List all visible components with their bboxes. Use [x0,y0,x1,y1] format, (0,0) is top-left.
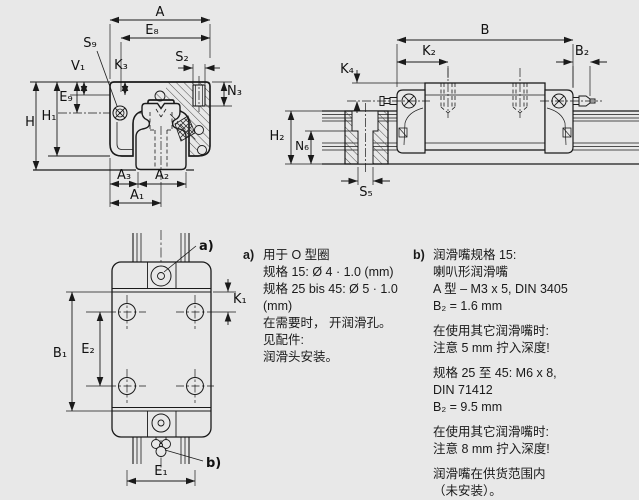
callout-b: b) [206,456,221,471]
dim-label-n6: N₆ [295,139,309,153]
dim-label-a3: A₃ [117,168,131,183]
side-view: B K₂ B₂ K₄ H₂ N₆ S₅ [270,23,639,200]
cross-section-view: A E₈ S₉ V₁ K₃ S₂ N₃ E₉ H H₁ A₃ A₂ A₁ [25,5,242,207]
grease-fitting-icon [113,106,127,120]
dim-label-a1: A₁ [130,188,144,203]
note-a-line: 见配件: [263,332,413,349]
note-a-body: 用于 O 型圈 规格 15: Ø 4 · 1.0 (mm) 规格 25 bis … [263,247,413,366]
grease-nipple-plan [152,437,171,457]
dim-label-a2: A₂ [155,168,169,183]
dim-label-v1: V₁ [71,59,85,74]
note-a-line: 润滑头安装。 [263,349,413,366]
dim-label-b: B [481,23,490,38]
note-a-line: 规格 15: Ø 4 · 1.0 (mm) [263,264,413,281]
note-b-paragraph: 润滑嘴在供货范围内 （未安装）。 可安在任意面上。 [433,466,568,500]
note-b-paragraph: 在使用其它润滑嘴时: 注意 8 mm 拧入深度! [433,424,568,458]
dim-label-k4: K₄ [340,62,354,77]
note-b-paragraph: 规格 25 至 45: M6 x 8, DIN 71412 B₂ = 9.5 m… [433,365,568,416]
dim-label-e1: E₁ [154,464,167,479]
dim-label-h2: H₂ [270,129,285,144]
dim-label-s2: S₂ [175,50,188,65]
lube-port-icon [155,91,165,101]
note-a-line: 在需要时， 开润滑孔。 [263,315,413,332]
drawing-canvas: A E₈ S₉ V₁ K₃ S₂ N₃ E₉ H H₁ A₃ A₂ A₁ [0,0,639,500]
note-a-label: a) [243,247,263,366]
note-b-body: 润滑嘴规格 15: 喇叭形润滑嘴 A 型 – M3 x 5, DIN 3405 … [433,247,568,500]
dim-label-a: A [156,5,165,20]
note-a-line: 用于 O 型圈 [263,247,413,264]
dim-label-k3: K₃ [114,58,128,73]
note-b-label: b) [413,247,433,500]
dim-label-n3: N₃ [227,84,242,99]
note-a: a) 用于 O 型圈 规格 15: Ø 4 · 1.0 (mm) 规格 25 b… [243,247,413,366]
dim-label-h1: H₁ [42,109,57,124]
dim-label-b1: B₁ [53,346,67,361]
dim-label-e2: E₂ [81,342,94,357]
note-b-paragraph: 在使用其它润滑嘴时: 注意 5 mm 拧入深度! [433,323,568,357]
dim-label-k2: K₂ [422,44,436,59]
dim-label-b2: B₂ [575,44,589,59]
dim-label-s9: S₉ [83,36,96,51]
note-b-paragraph: 润滑嘴规格 15: 喇叭形润滑嘴 A 型 – M3 x 5, DIN 3405 … [433,247,568,315]
note-a-line: 规格 25 bis 45: Ø 5 · 1.0 (mm) [263,281,413,315]
callout-a: a) [199,239,214,254]
note-b: b) 润滑嘴规格 15: 喇叭形润滑嘴 A 型 – M3 x 5, DIN 34… [413,247,639,500]
dim-label-e9: E₉ [59,90,72,105]
top-view: K₁ B₁ E₂ E₁ a) b) [53,230,247,486]
dim-label-h: H [25,115,35,130]
dim-label-s5: S₅ [359,185,372,200]
dim-label-e8: E₈ [145,23,158,38]
